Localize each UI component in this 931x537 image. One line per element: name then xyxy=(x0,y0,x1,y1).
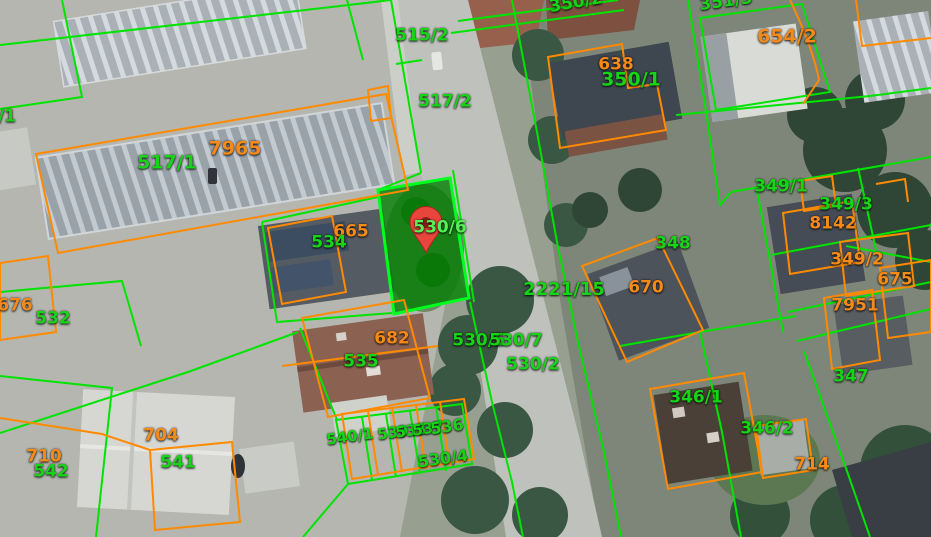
map-canvas[interactable]: 515/2517/2350/2351/3654/2638350/17965517… xyxy=(0,0,931,537)
